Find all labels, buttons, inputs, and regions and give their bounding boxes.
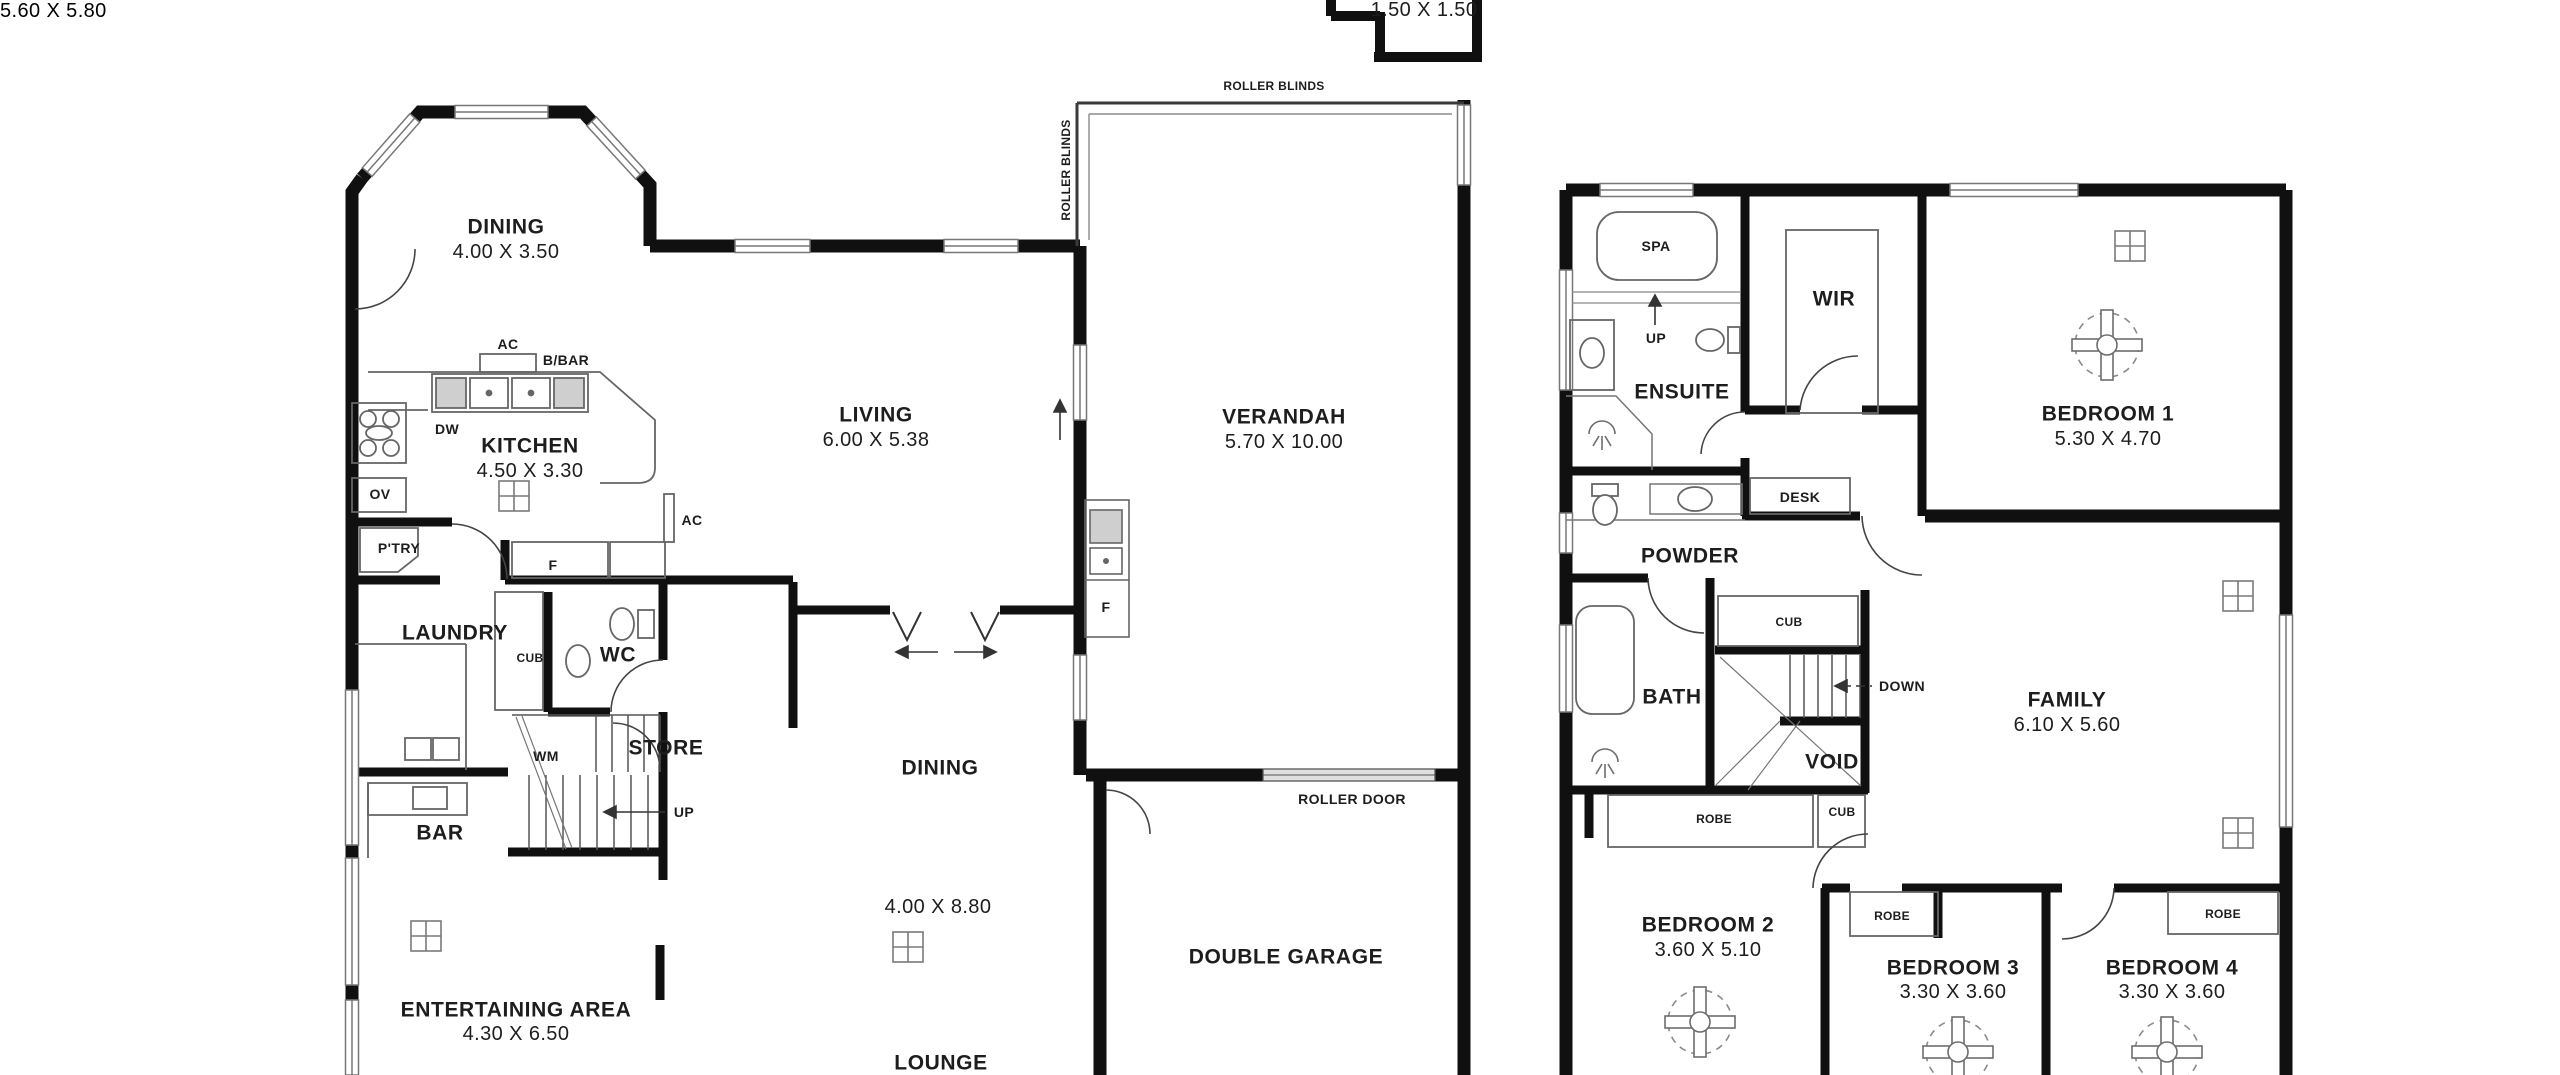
dim-label-entertaining: 4.30 X 6.50 [463, 1024, 570, 1044]
room-label-living: LIVING [839, 405, 913, 426]
floor-plan-drawing [0, 0, 2560, 1075]
dim-label-dining: 4.00 X 3.50 [453, 242, 560, 262]
light-vent-icon [893, 932, 923, 962]
room-label-void: VOID [1805, 752, 1859, 773]
room-label-wc: WC [600, 645, 636, 666]
dining-cavity-sliders [893, 612, 999, 640]
gf-stairs-up-arrow [604, 806, 665, 818]
room-label-laundry: LAUNDRY [402, 623, 508, 644]
light-vent-icon [411, 921, 441, 951]
cupboard-label-gf: CUB [517, 652, 544, 664]
room-label-bedroom-4: BEDROOM 4 [2106, 958, 2239, 979]
room-label-bedroom-1: BEDROOM 1 [2042, 404, 2175, 425]
desk-label: DESK [1780, 490, 1821, 504]
up-label-uf: UP [1646, 331, 1666, 345]
ceiling-fan-icon [1665, 987, 1735, 1057]
roller-blinds-label-top: ROLLER BLINDS [1223, 80, 1324, 92]
gf-door-arcs [355, 249, 1150, 834]
dishwasher-label: DW [435, 422, 459, 436]
powder-basin [1678, 487, 1712, 511]
roller-blinds-label-left: ROLLER BLINDS [1060, 119, 1072, 220]
living-door-arrow [1054, 400, 1066, 440]
room-label-dining-2: DINING [901, 758, 978, 779]
wir-robe [1786, 230, 1878, 413]
dining-slider-arrows [896, 646, 996, 658]
bathtub [1576, 606, 1634, 714]
fridge-cupboard-row [512, 542, 665, 578]
ensuite-shower-screen [1566, 396, 1652, 470]
up-label-gf: UP [674, 805, 694, 819]
dim-label-bedroom-3: 3.30 X 3.60 [1900, 982, 2007, 1002]
wc-basin [566, 645, 590, 677]
spa-label: SPA [1642, 239, 1671, 253]
room-label-kitchen: KITCHEN [481, 436, 579, 457]
wc-toilet [610, 608, 654, 640]
roller-door [1263, 769, 1435, 781]
gf-stairs [512, 715, 660, 850]
room-label-bedroom-2: BEDROOM 2 [1642, 915, 1775, 936]
robe-label-bed4: ROBE [2205, 908, 2241, 920]
ceiling-fan-icon [2072, 310, 2142, 380]
ensuite-toilet [1696, 327, 1740, 353]
shower-icon [1592, 749, 1618, 778]
dim-label-living: 6.00 X 5.38 [823, 430, 930, 450]
fridge-label-verandah: F [1102, 600, 1111, 614]
cupboard-label-1: CUB [1776, 616, 1803, 628]
light-vent-icon [2223, 818, 2253, 848]
pantry-label: P'TRY [378, 541, 420, 555]
dim-label-family: 6.10 X 5.60 [2014, 715, 2121, 735]
dim-label-bedroom-2: 3.60 X 5.10 [1655, 940, 1762, 960]
dim-label-verandah: 5.70 X 10.00 [1225, 432, 1343, 452]
oven-label: OV [369, 487, 390, 501]
room-label-entertaining: ENTERTAINING AREA [401, 1000, 632, 1021]
room-label-family: FAMILY [2028, 690, 2107, 711]
gf-verandah-wall [1080, 100, 1470, 1075]
ac-label-kitchen: AC [497, 337, 518, 351]
bar-bench [368, 783, 467, 858]
verandah-outdoor-kitchen [1085, 500, 1129, 637]
room-label-powder: POWDER [1641, 546, 1739, 567]
robe-label-bed3: ROBE [1874, 910, 1910, 922]
cupboard-label-2: CUB [1829, 806, 1856, 818]
dim-label-dining-2: 4.00 X 8.80 [885, 897, 992, 917]
gf-verandah-outline [1077, 103, 1464, 246]
room-label-bath: BATH [1642, 687, 1701, 708]
ac-label-living: AC [681, 513, 702, 527]
ceiling-fan-icon [2132, 1017, 2202, 1075]
light-vent-icon [499, 481, 529, 511]
dim-label-bedroom-4: 3.30 X 3.60 [2119, 982, 2226, 1002]
ensuite-vanity [1570, 320, 1614, 390]
down-label: DOWN [1879, 679, 1925, 693]
laundry-bench [355, 644, 466, 770]
ensuite-up-arrow [1649, 295, 1661, 325]
room-label-ensuite: ENSUITE [1634, 382, 1729, 403]
stove-cooktop [352, 403, 406, 463]
dim-label-storage-room: 1.50 X 1.50 [1371, 0, 1478, 20]
light-vent-icon [2115, 231, 2145, 261]
room-label-garage: DOUBLE GARAGE [1189, 947, 1383, 968]
room-label-verandah: VERANDAH [1222, 407, 1346, 428]
dim-label-bedroom-1: 5.30 X 4.70 [2055, 429, 2162, 449]
dim-label-kitchen: 4.50 X 3.30 [477, 461, 584, 481]
light-vent-icon [2223, 581, 2253, 611]
robe-label-bed2: ROBE [1696, 813, 1732, 825]
floor-plan-page: DINING 4.00 X 3.50 KITCHEN 4.50 X 3.30 L… [0, 0, 2560, 1075]
ac-unit-living [664, 494, 674, 542]
ceiling-fan-icon [1923, 1017, 1993, 1075]
room-label-bar: BAR [416, 823, 463, 844]
gf-verandah-inner-line [1089, 114, 1452, 240]
room-label-store: STORE [629, 738, 704, 759]
powder-toilet [1592, 484, 1618, 525]
fridge-label-kitchen: F [549, 558, 558, 572]
room-label-lounge: LOUNGE [894, 1053, 987, 1074]
washing-machine-label: WM [533, 749, 559, 763]
breakfast-bar-label: B/BAR [543, 353, 589, 367]
room-label-wir: WIR [1813, 289, 1856, 310]
shower-icon [1589, 421, 1615, 450]
roller-door-label: ROLLER DOOR [1298, 792, 1406, 806]
room-label-dining: DINING [467, 217, 544, 238]
room-label-bedroom-3: BEDROOM 3 [1887, 958, 2020, 979]
